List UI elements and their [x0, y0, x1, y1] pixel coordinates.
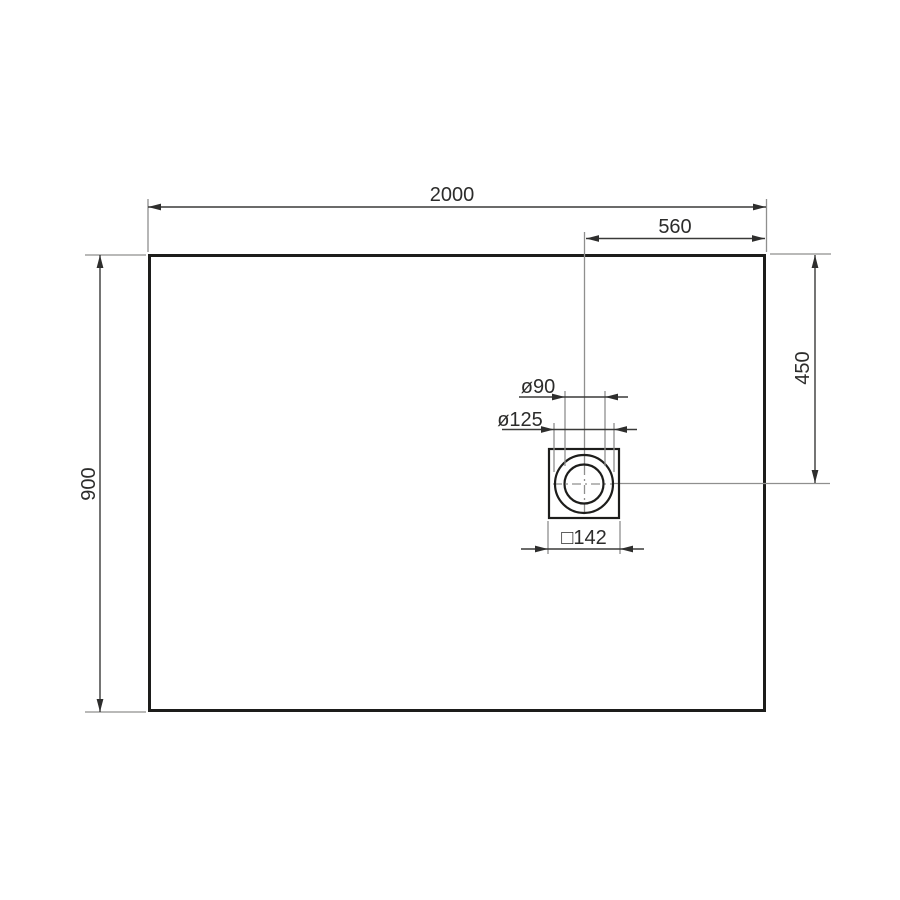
dim-90-label: ø90 [521, 376, 555, 398]
dim-drain-outer-diameter: ø125 [497, 409, 637, 472]
dim-drain-offset-right: 560 [586, 216, 765, 242]
dim-2000-label: 2000 [430, 184, 475, 206]
arrow-right-icon [752, 235, 765, 242]
arrow-up-icon [812, 255, 819, 268]
arrow-left-icon [614, 426, 627, 433]
arrow-left-icon [605, 394, 618, 401]
technical-drawing: 2000 560 900 450 [0, 0, 900, 900]
arrow-left-icon [620, 546, 633, 553]
dim-drain-offset-top: 450 [770, 254, 831, 483]
arrow-down-icon [812, 470, 819, 483]
arrow-left-icon [586, 235, 599, 242]
arrow-right-icon [541, 426, 554, 433]
drain-center-lines [553, 232, 830, 513]
arrow-right-icon [535, 546, 548, 553]
arrow-up-icon [97, 255, 104, 268]
dim-450-label: 450 [792, 351, 814, 384]
dim-142-label: □142 [561, 527, 606, 549]
arrow-down-icon [97, 699, 104, 712]
dim-overall-width: 900 [78, 255, 146, 712]
dim-900-label: 900 [78, 467, 100, 500]
dim-drain-square: □142 [521, 521, 644, 554]
arrow-left-icon [148, 204, 161, 211]
arrow-right-icon [753, 204, 766, 211]
dim-125-label: ø125 [497, 409, 543, 431]
dim-560-label: 560 [658, 216, 691, 238]
drawing-canvas: 2000 560 900 450 [0, 0, 900, 900]
